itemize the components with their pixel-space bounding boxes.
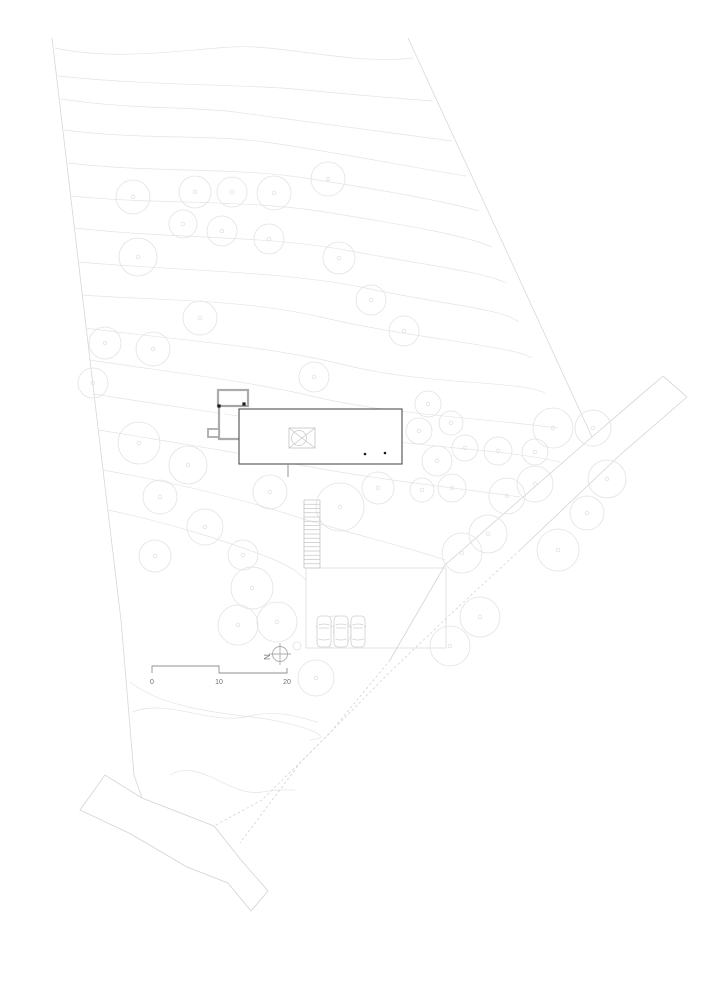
tree-trunk xyxy=(312,375,316,379)
tree-canopy xyxy=(118,422,160,464)
left-property-line xyxy=(52,38,142,798)
scale-bar-line xyxy=(152,666,287,673)
roof-point xyxy=(364,453,367,456)
tree xyxy=(422,446,452,476)
tree-trunk xyxy=(533,482,537,486)
tree-trunk xyxy=(585,511,589,515)
tree-trunk xyxy=(151,347,155,351)
tree xyxy=(489,478,525,514)
tree xyxy=(253,475,287,509)
tree xyxy=(570,496,604,530)
lower-road-outline xyxy=(80,775,268,911)
tree-canopy xyxy=(253,475,287,509)
driveway-upper-edge-dashed xyxy=(214,660,390,826)
tree-trunk xyxy=(267,237,271,241)
scale-bar: 01020 xyxy=(150,666,291,686)
tree-canopy xyxy=(517,466,553,502)
tree-trunk xyxy=(137,441,141,445)
tree-canopy xyxy=(254,224,284,254)
tree-trunk xyxy=(426,402,430,406)
tree-canopy xyxy=(207,216,237,246)
contour-line xyxy=(78,262,519,322)
tree-canopy xyxy=(298,660,334,696)
tree-trunk xyxy=(326,177,330,181)
tree-trunk xyxy=(136,255,140,259)
tree xyxy=(298,660,334,696)
tree xyxy=(415,391,441,417)
building xyxy=(208,390,402,477)
tree-trunk xyxy=(186,463,190,467)
tree xyxy=(136,332,170,366)
contour-line xyxy=(71,196,492,247)
tree-trunk xyxy=(250,586,254,590)
exterior-stair xyxy=(304,500,320,568)
tree-trunk xyxy=(193,190,197,194)
driveway-lower-edge xyxy=(520,397,687,550)
tree-canopy xyxy=(489,478,525,514)
tree xyxy=(257,602,297,642)
tree-canopy xyxy=(460,597,500,637)
contour-line xyxy=(130,682,320,740)
tree-trunk xyxy=(460,551,464,555)
tree-canopy xyxy=(588,460,626,498)
tree-trunk xyxy=(605,477,609,481)
tree xyxy=(389,316,419,346)
tree-canopy xyxy=(143,480,177,514)
tree xyxy=(522,439,548,465)
tree xyxy=(143,480,177,514)
tree-trunk xyxy=(448,644,452,648)
tree-canopy xyxy=(116,180,150,214)
tree-trunk xyxy=(203,525,207,529)
tree-canopy xyxy=(469,515,507,553)
contour-line xyxy=(64,130,466,176)
tree xyxy=(362,472,394,504)
annex-walls xyxy=(219,406,240,439)
tree-canopy xyxy=(257,602,297,642)
tree-canopy xyxy=(183,301,217,335)
tree-trunk xyxy=(131,195,135,199)
tree xyxy=(254,224,284,254)
tree-trunk xyxy=(181,222,185,226)
tree-canopy xyxy=(218,605,258,645)
scale-bar-label: 0 xyxy=(150,679,154,686)
tree-trunk xyxy=(198,316,202,320)
wall-junction-dot xyxy=(217,404,220,407)
tree-trunk xyxy=(272,191,276,195)
tree-canopy xyxy=(89,327,121,359)
tree-trunk xyxy=(449,421,453,425)
tree-canopy xyxy=(406,418,432,444)
wall-junction-dot xyxy=(242,402,245,405)
car xyxy=(316,616,332,647)
tree-canopy xyxy=(231,567,273,609)
tree-canopy xyxy=(299,362,329,392)
tree-trunk xyxy=(551,426,555,430)
tree-trunk xyxy=(478,615,482,619)
tree-canopy xyxy=(533,408,573,448)
tree-canopy xyxy=(119,238,157,276)
tree xyxy=(517,466,553,502)
tree-canopy xyxy=(136,332,170,366)
tree xyxy=(89,327,121,359)
tree-trunk xyxy=(268,490,272,494)
tree-trunk xyxy=(533,450,537,454)
roof-point xyxy=(384,452,387,455)
tree xyxy=(179,176,211,208)
tree xyxy=(575,410,611,446)
tree xyxy=(217,177,247,207)
tree-canopy xyxy=(257,176,291,210)
contour-line xyxy=(55,47,413,60)
tree-trunk xyxy=(236,623,240,627)
tree-trunk xyxy=(417,429,421,433)
tree xyxy=(218,605,258,645)
tree-trunk xyxy=(435,459,439,463)
tree-trunk xyxy=(402,329,406,333)
tree-canopy xyxy=(217,177,247,207)
tree xyxy=(228,540,258,570)
tree-canopy xyxy=(442,533,482,573)
tree-canopy xyxy=(537,529,579,571)
tree-trunk xyxy=(486,532,490,536)
tree xyxy=(442,533,482,573)
tree-canopy xyxy=(410,478,434,502)
site-plan-page: 01020N xyxy=(0,0,707,1000)
tree-canopy xyxy=(311,162,345,196)
scale-bar-label: 10 xyxy=(215,679,223,686)
contour-line xyxy=(75,228,506,283)
contour-line xyxy=(132,708,318,722)
tree-trunk xyxy=(220,229,224,233)
tree xyxy=(406,418,432,444)
tree-canopy xyxy=(439,411,463,435)
tree xyxy=(323,242,355,274)
tree xyxy=(231,567,273,609)
tree-canopy xyxy=(522,439,548,465)
contour-line xyxy=(68,163,479,211)
tree xyxy=(410,478,434,502)
tree-trunk xyxy=(314,676,318,680)
tree-canopy xyxy=(139,540,171,572)
tree-trunk xyxy=(505,494,509,498)
tree-trunk xyxy=(591,426,595,430)
tree xyxy=(207,216,237,246)
driveway-top-cap xyxy=(663,376,687,397)
tree-trunk xyxy=(103,341,107,345)
tree xyxy=(311,162,345,196)
car xyxy=(333,616,349,647)
tree-trunk xyxy=(463,446,467,450)
tree-trunk xyxy=(158,495,162,499)
tree xyxy=(183,301,217,335)
car-body xyxy=(317,616,331,647)
tree xyxy=(169,210,197,238)
tree-trunk xyxy=(241,553,245,557)
tree xyxy=(460,597,500,637)
tree xyxy=(139,540,171,572)
tree xyxy=(439,411,463,435)
tree xyxy=(116,180,150,214)
tree-canopy xyxy=(179,176,211,208)
tree-trunk xyxy=(230,190,234,194)
tree-canopy xyxy=(362,472,394,504)
right-property-line xyxy=(408,38,592,437)
car-body xyxy=(334,616,348,647)
tree-canopy xyxy=(293,642,301,650)
parked-cars xyxy=(316,616,366,647)
tree-trunk xyxy=(369,298,373,302)
tree xyxy=(469,515,507,553)
tree-trunk xyxy=(337,256,341,260)
tree-canopy xyxy=(169,210,197,238)
annex-notch xyxy=(208,429,219,437)
scale-bar-label: 20 xyxy=(283,679,291,686)
tree xyxy=(316,483,364,531)
tree-canopy xyxy=(389,316,419,346)
tree xyxy=(119,238,157,276)
tree xyxy=(533,408,573,448)
north-label: N xyxy=(262,654,271,660)
tree-trunk xyxy=(275,620,279,624)
tree-canopy xyxy=(415,391,441,417)
car-body xyxy=(351,616,365,647)
tree xyxy=(118,422,160,464)
site-plan-svg: 01020N xyxy=(0,0,707,1000)
tree xyxy=(187,509,223,545)
tree-trunk xyxy=(338,505,342,509)
tree xyxy=(293,642,301,650)
contour-line xyxy=(58,76,433,101)
tree-canopy xyxy=(422,446,452,476)
tree xyxy=(588,460,626,498)
tree-canopy xyxy=(228,540,258,570)
tree-canopy xyxy=(323,242,355,274)
tree-trunk xyxy=(153,554,157,558)
tree xyxy=(537,529,579,571)
tree xyxy=(169,446,207,484)
car xyxy=(350,616,366,647)
tree xyxy=(299,362,329,392)
contour-line xyxy=(86,328,545,393)
tree-trunk xyxy=(420,488,424,492)
tree-canopy xyxy=(570,496,604,530)
tree-canopy xyxy=(187,509,223,545)
tree-canopy xyxy=(575,410,611,446)
tree-trunk xyxy=(376,486,380,490)
tree-canopy xyxy=(316,483,364,531)
tree xyxy=(257,176,291,210)
main-house-roof xyxy=(239,409,402,464)
north-arrow: N xyxy=(262,643,291,665)
contour-line xyxy=(170,770,295,792)
contour-line xyxy=(82,295,532,358)
tree-canopy xyxy=(169,446,207,484)
tree-trunk xyxy=(556,548,560,552)
